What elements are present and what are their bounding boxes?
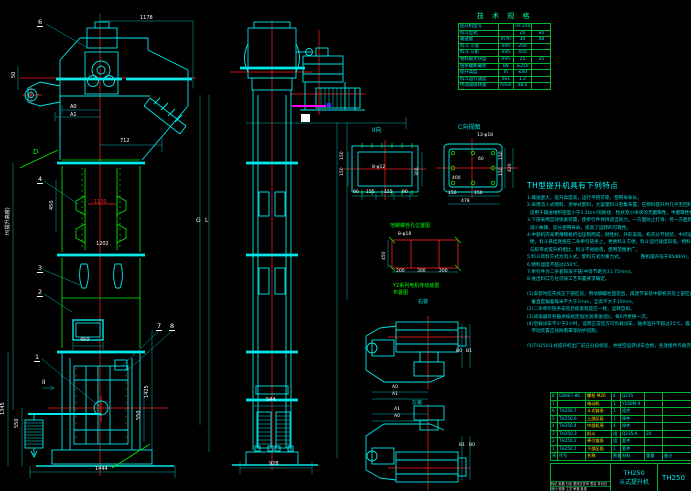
parts-cell: 8	[551, 393, 558, 401]
dim-label: 150	[474, 192, 483, 197]
parts-cell	[645, 408, 663, 416]
drawing-title: 斗式提升机	[619, 477, 649, 486]
note-line	[527, 284, 691, 291]
part-balloon-1: 1	[34, 354, 40, 362]
parts-cell: TH250.7	[558, 408, 586, 416]
dim-label: 200	[396, 270, 405, 275]
dim-label: B0	[456, 350, 462, 355]
dim-label: II向	[372, 128, 382, 134]
title-block-code-area: TH250	[658, 464, 691, 491]
dim-label: H(提升高度)	[6, 207, 11, 235]
drawing-code: TH250	[662, 474, 685, 482]
dim-label: 928	[269, 462, 279, 467]
dim-label: 1444	[95, 467, 108, 472]
spec-cell: ≤40	[513, 70, 532, 77]
foundation-bolt-detail	[392, 240, 458, 268]
spec-cell: 250	[513, 43, 532, 50]
dim-label: 90	[353, 191, 359, 196]
spec-cell: 物料最大块度	[459, 56, 499, 63]
dim-label: 8-φ18	[398, 233, 411, 238]
dim-label: 450	[383, 251, 388, 260]
spec-cell	[532, 76, 551, 83]
dim-label: 13-φ18	[477, 134, 493, 139]
dim-label: A0	[70, 105, 77, 110]
parts-cell: 备注	[663, 453, 691, 461]
spec-cell	[532, 70, 551, 77]
spec-cell: 料斗运行速度	[459, 76, 499, 83]
spec-cell: 输送量	[459, 37, 499, 44]
dim-label: B1	[466, 350, 472, 355]
note-line: 便。料斗悬挂连接在二条牵引链条上，更换料斗方便，料斗运行速度较低，物料的破碎率小…	[527, 239, 691, 246]
spec-table-title: 技 术 规 格	[458, 11, 551, 21]
spec-cell	[499, 24, 514, 31]
dim-label: 1130	[94, 200, 107, 205]
note-line: (4)空载试车不少于2小时，运转正常后方可负载试车，轴承温升不超过25℃，露天使…	[527, 321, 691, 328]
parts-cell: 6	[551, 408, 558, 416]
parts-cell	[645, 415, 663, 423]
dimension-lines	[8, 14, 513, 480]
spec-cell: 链条破断载荷	[459, 63, 499, 70]
spec-cell	[532, 50, 551, 57]
dim-label: II	[42, 380, 46, 386]
parts-cell: 1	[551, 445, 558, 453]
parts-cell: 套件	[621, 438, 645, 446]
dim-label: A1	[70, 113, 77, 118]
spec-cell: 料斗 斗宽	[459, 43, 499, 50]
parts-cell: 3	[551, 430, 558, 438]
parts-cell: 1	[612, 415, 621, 423]
dim-label: 50	[12, 72, 17, 78]
spec-cell: kN	[499, 63, 514, 70]
note-line: (1)安装时应先找正下部区段，用地脚螺栓固定后，再逐节安装中部机壳及上部区段，机…	[527, 291, 691, 298]
title-block-name-area: TH250 斗式提升机	[611, 464, 658, 491]
parts-cell: 牵引链条	[586, 438, 612, 446]
title-block-revision-area: 标记 处数 分区 更改文件号 签名 年月日 设计 校核 工艺 审核 批准	[551, 464, 611, 491]
dim-label: A0	[392, 386, 398, 391]
spec-cell	[532, 43, 551, 50]
parts-cell	[663, 415, 691, 423]
note-line: 8.进出料口方位可按工艺布置要求确定。	[527, 276, 691, 283]
notes-lines: 1.输送量大，提升高度高，运行平稳可靠，使用寿命长。2.采用流入式喂料，诱导式卸…	[527, 195, 691, 351]
dim-label: A0	[394, 415, 400, 420]
dim-label: 1202	[96, 242, 109, 247]
drawing-model: TH250	[623, 469, 644, 477]
dim-label: A1	[392, 393, 398, 398]
parts-cell: GB907-86	[558, 393, 586, 401]
spec-cell: m³/h	[499, 37, 514, 44]
parts-cell	[663, 438, 691, 446]
dim-label: 右装	[418, 300, 428, 305]
dim-label: B0	[469, 444, 475, 449]
parts-cell: 焊件	[621, 415, 645, 423]
parts-cell	[645, 393, 663, 401]
parts-list-table: 8GB907-86螺栓 M204Q2357电动机1Y160M-46TH250.7…	[550, 392, 691, 461]
parts-cell	[645, 400, 663, 408]
spec-cell: m	[499, 70, 514, 77]
note-line: 7.牵引件为二条套筒滚子链(中等节距为31.75mm)。	[527, 269, 691, 276]
dim-label: 550	[15, 418, 20, 428]
signature-row: 设计 校核 工艺 审核 批准	[551, 486, 610, 491]
spec-cell: 料斗 斗距	[459, 50, 499, 57]
parts-cell: 螺栓 M20	[586, 393, 612, 401]
dim-label: 1425	[145, 385, 150, 398]
dim-label: 300	[416, 167, 421, 176]
dim-label: 450	[50, 200, 55, 210]
note-line: 1.输送量大，提升高度高，运行平稳可靠，使用寿命长。	[527, 195, 691, 202]
dim-label: G	[196, 218, 201, 224]
parts-cell: 20	[645, 430, 663, 438]
parts-cell: 5	[551, 415, 558, 423]
parts-cell: Q235-A	[621, 430, 645, 438]
parts-cell: 中部机壳	[586, 423, 612, 431]
parts-cell: 材料	[621, 453, 645, 461]
spec-cell: 48	[532, 37, 551, 44]
note-line: 传动装置应加防雨罩等防护措施。	[527, 328, 691, 335]
parts-cell	[663, 393, 691, 401]
dim-label: 712	[120, 139, 130, 144]
note-line	[527, 336, 691, 343]
parts-cell: 1	[612, 408, 621, 416]
dim-label: 478	[461, 200, 470, 205]
spec-cell: 25	[513, 56, 532, 63]
dim-label: 400	[452, 177, 461, 182]
note-line: 2.采用流入式喂料，诱导式卸料，大容量料斗密集布置，在物料提升时几乎无回料和挖料…	[527, 202, 691, 209]
parts-cell: 组	[612, 438, 621, 446]
note-line: 4.中部机壳采用薄钢板折边压制而成，刚性好，外形美观。机壳分节组装，中间设有检修…	[527, 232, 691, 239]
spec-cell: Sh	[532, 30, 551, 37]
note-line: 减少故障，延长使用寿命，提高了运转的可靠性。	[527, 225, 691, 232]
parts-cell	[645, 438, 663, 446]
dim-label: B1	[459, 444, 465, 449]
parts-cell	[645, 423, 663, 431]
note-line: (2)二条牵引链条安装后松紧程度应一致，运转自如。	[527, 306, 691, 313]
parts-cell	[663, 400, 691, 408]
parts-cell	[645, 445, 663, 453]
parts-cell: Y160M-4	[621, 400, 645, 408]
parts-cell: 7	[551, 400, 558, 408]
parts-cell: 4	[612, 393, 621, 401]
dim-label: 左装	[412, 401, 422, 406]
parts-cell: 2	[551, 438, 558, 446]
spec-table: 技 术 规 格 提升机型号TH 250料斗型式ZhSh输送量m³/h3048料斗…	[458, 11, 551, 90]
parts-cell: 4	[612, 423, 621, 431]
dim-label: 155	[384, 191, 393, 196]
dim-label: 1345	[1, 402, 6, 415]
parts-cell: 4	[551, 423, 558, 431]
spec-cell: 450	[513, 50, 532, 57]
spec-cell: 提升机型号	[459, 24, 499, 31]
parts-cell: 组	[612, 430, 621, 438]
dim-label: 150	[500, 151, 505, 160]
dim-label: Y2系列电机传动装置	[393, 284, 439, 289]
parts-cell: 1	[612, 445, 621, 453]
note-line: 6.物料温度不超过250℃。	[527, 262, 691, 269]
cad-drawing-sheet: 1178712A0A150D45011301202H(提升高度)GLII4501…	[0, 0, 691, 491]
dim-label: 90	[402, 191, 408, 196]
spec-cell: TH 250	[513, 24, 532, 31]
dim-label: 450	[80, 338, 90, 343]
spec-cell: mm	[499, 43, 514, 50]
note-line: 垂直度偏差每米不大于1mm，全高不大于10mm。	[527, 299, 691, 306]
part-balloon-4: 4	[37, 176, 43, 184]
dim-label: 地脚螺栓孔位置图	[390, 224, 430, 229]
note-line: 与胶带式提升机相比，料斗不易脱落，使用范围更广。	[527, 247, 691, 254]
spec-cell	[532, 63, 551, 70]
note-line: 适用于输送堆积密度小于1.5t/m³的粉状、粒状及小块状的无磨琢性、半磨琢性物料…	[527, 210, 691, 217]
dim-label: A1	[394, 408, 400, 413]
dim-label: 1178	[140, 16, 153, 21]
spec-cell: ≥250	[513, 63, 532, 70]
parts-cell: 代号	[558, 453, 586, 461]
spec-cell: mm	[499, 50, 514, 57]
parts-cell	[663, 423, 691, 431]
spec-cell	[532, 83, 551, 90]
spec-cell: 1.2	[513, 76, 532, 83]
parts-table-body: 8GB907-86螺栓 M204Q2357电动机1Y160M-46TH250.7…	[551, 393, 691, 461]
blue-marker	[327, 103, 331, 107]
spec-cell: r/min	[499, 83, 514, 90]
parts-cell	[558, 400, 586, 408]
parts-cell: TH250.1	[558, 445, 586, 453]
part-balloon-3: 3	[37, 265, 43, 273]
selected-dim-box	[301, 114, 310, 122]
note-line: (5)TH250斗式提升机出厂前已分段组装，并经空运转试车合格，各连接件齐备完好…	[527, 343, 691, 350]
spec-cell: 30	[513, 37, 532, 44]
parts-cell: 电动机	[586, 400, 612, 408]
parts-cell: 重量	[645, 453, 663, 461]
spec-table-body: 提升机型号TH 250料斗型式ZhSh输送量m³/h3048料斗 斗宽mm250…	[459, 24, 551, 90]
part-balloon-6: 6	[37, 19, 43, 27]
parts-cell: 组件	[621, 408, 645, 416]
parts-cell: 数量	[612, 453, 621, 461]
parts-cell: 1	[612, 400, 621, 408]
parts-cell: TH250.3	[558, 430, 586, 438]
dim-label: 150	[500, 167, 505, 176]
dim-label: 150	[448, 192, 457, 197]
dim-label: 布置图	[393, 291, 408, 296]
dim-label: 300	[417, 270, 426, 275]
dim-label: 155	[366, 191, 375, 196]
dim-label: 150	[341, 167, 346, 176]
spec-cell: 料斗型式	[459, 30, 499, 37]
dim-label: D	[33, 149, 38, 156]
parts-cell: 套件	[621, 445, 645, 453]
spec-cell: mm	[499, 56, 514, 63]
dim-label: 550	[137, 410, 142, 420]
notes-title: TH型提升机具有下列特点	[527, 180, 691, 191]
parts-cell: Q235	[621, 393, 645, 401]
parts-cell: 名称	[586, 453, 612, 461]
spec-cell: 35	[532, 56, 551, 63]
spec-cell: 传动滚筒转速	[459, 83, 499, 90]
parts-cell: 序号	[551, 453, 558, 461]
parts-list-grid: 8GB907-86螺栓 M204Q2357电动机1Y160M-46TH250.7…	[550, 392, 691, 461]
dim-label: 200	[439, 270, 448, 275]
spec-cell: 提升高度	[459, 70, 499, 77]
note-line: 3.下部采用自动张紧装置，使牵引件保持适当张力，一方面防止打滑，另一方面防止链条…	[527, 217, 691, 224]
flange-bands	[28, 68, 318, 466]
dim-label: 60	[478, 158, 484, 163]
dim-label: 420	[509, 163, 514, 172]
part-balloon-7: 7	[156, 323, 162, 331]
parts-cell	[663, 445, 691, 453]
parts-cell: 料斗	[586, 430, 612, 438]
parts-cell: 焊件	[621, 423, 645, 431]
parts-cell	[663, 430, 691, 438]
spec-cell: Zh	[513, 30, 532, 37]
dim-label: 150	[341, 151, 346, 160]
part-balloon-2: 2	[37, 289, 43, 297]
dim-label: L	[205, 218, 208, 224]
spec-cell	[499, 30, 514, 37]
spec-table-grid: 提升机型号TH 250料斗型式ZhSh输送量m³/h3048料斗 斗宽mm250…	[458, 23, 551, 90]
parts-cell: TH250.6	[558, 415, 586, 423]
parts-cell: 上部区段	[586, 415, 612, 423]
parts-cell	[663, 408, 691, 416]
notes-block: TH型提升机具有下列特点 1.输送量大，提升高度高，运行平稳可靠，使用寿命长。2…	[527, 180, 691, 351]
dim-label: 544	[266, 398, 276, 403]
note-line: (3)减速器及各轴承按规定加注润滑油(脂)，每6月更换一次。	[527, 314, 691, 321]
dim-label: 8-φ12	[372, 166, 385, 171]
dim-label: C向视图	[458, 125, 480, 131]
spec-cell	[532, 24, 551, 31]
note-line: 5.料斗装料方式为流入式，卸料方式为重力式。 整机噪声低于85dB(A)，运转平…	[527, 254, 691, 261]
part-balloon-8: 8	[169, 323, 175, 331]
title-block: 标记 处数 分区 更改文件号 签名 年月日 设计 校核 工艺 审核 批准 TH2…	[550, 463, 691, 491]
parts-cell: TH250.4	[558, 423, 586, 431]
spec-cell: m/s	[499, 76, 514, 83]
spec-cell: 48.0	[513, 83, 532, 90]
parts-cell: 斗式链条	[586, 408, 612, 416]
parts-cell: TH250.2	[558, 438, 586, 446]
parts-cell: 下部区段	[586, 445, 612, 453]
